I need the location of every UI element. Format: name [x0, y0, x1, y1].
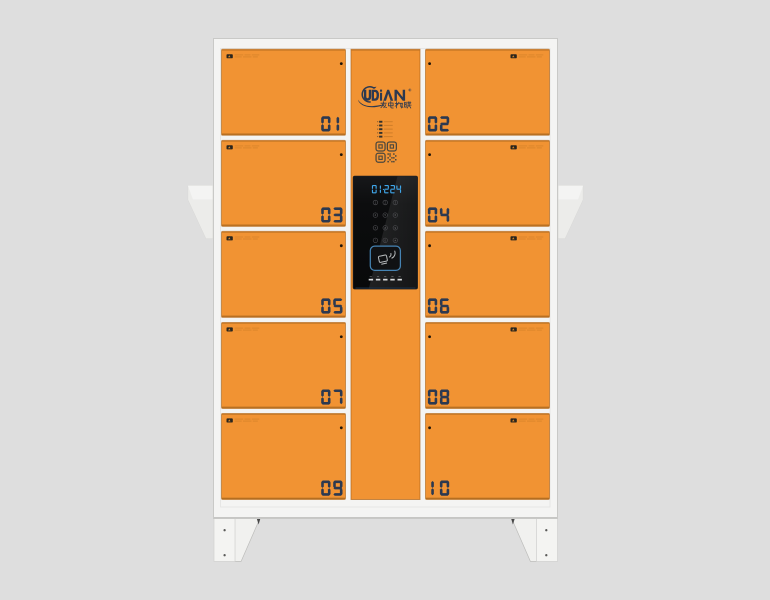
svg-text:*: * [375, 238, 376, 242]
